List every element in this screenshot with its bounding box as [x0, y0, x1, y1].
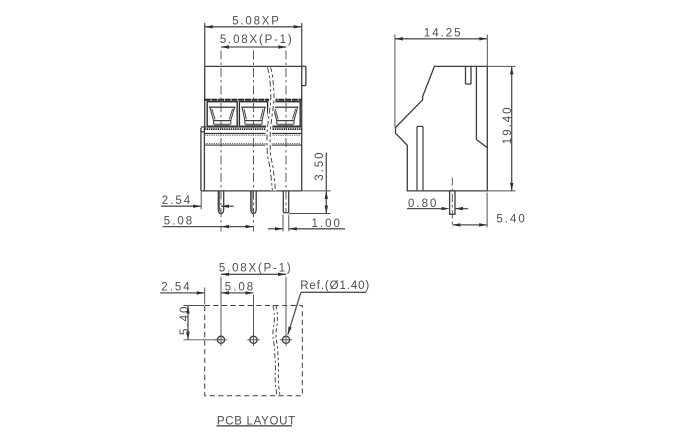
svg-text:1.00: 1.00	[312, 218, 342, 230]
svg-text:5.40: 5.40	[496, 213, 526, 225]
svg-text:14.25: 14.25	[424, 27, 463, 39]
svg-text:2.54: 2.54	[162, 195, 192, 207]
svg-text:5.08: 5.08	[225, 281, 255, 293]
svg-text:5.40: 5.40	[179, 305, 191, 335]
svg-text:0.80: 0.80	[408, 198, 438, 210]
svg-text:5.08XP: 5.08XP	[232, 15, 281, 27]
svg-text:5.08: 5.08	[164, 215, 194, 227]
svg-text:3.50: 3.50	[314, 150, 326, 180]
svg-text:Ref.(Ø1.40): Ref.(Ø1.40)	[300, 280, 370, 292]
svg-text:5.08X(P-1): 5.08X(P-1)	[220, 34, 294, 46]
svg-text:19.40: 19.40	[502, 105, 514, 144]
svg-text:2.54: 2.54	[161, 281, 191, 293]
svg-text:5.08X(P-1): 5.08X(P-1)	[219, 262, 293, 274]
